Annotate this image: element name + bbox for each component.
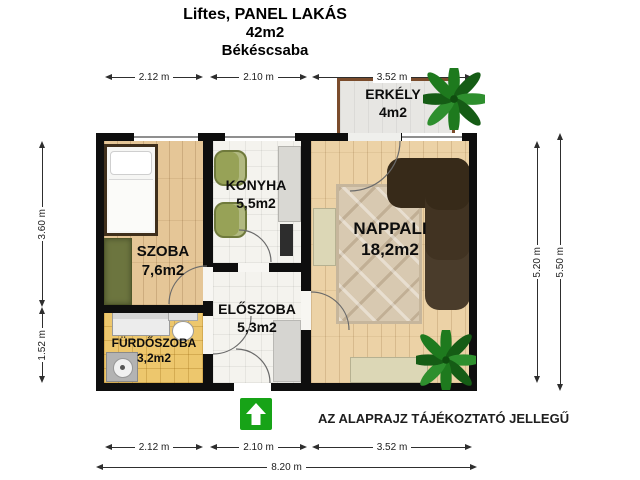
dimension-left-2: 1.52 m [36, 307, 48, 383]
arrow-down-icon [557, 384, 563, 391]
dimension-line [42, 314, 43, 328]
dimension-line [411, 447, 465, 448]
arrow-down-icon [39, 376, 45, 383]
disclaimer-note: AZ ALAPRAJZ TÁJÉKOZTATÓ JELLEGŰ [318, 411, 569, 426]
arrow-up-icon [534, 141, 540, 148]
arrow-left-icon [312, 444, 319, 450]
door-opening-entrance [234, 383, 271, 391]
arrow-right-icon [196, 74, 203, 80]
dimension-line [537, 148, 538, 245]
room-area-eloszoba: 5,3m2 [207, 319, 307, 337]
dimension-label: 1.52 m [37, 328, 48, 363]
arrow-left-icon [312, 74, 319, 80]
stove [280, 224, 293, 256]
dimension-bottom-2: 2.10 m [210, 442, 307, 452]
dimension-line [306, 467, 470, 468]
dimension-line [319, 77, 373, 78]
room-name-eloszoba: ELŐSZOBA [207, 301, 307, 319]
dimension-right-2: 5.50 m [554, 133, 566, 391]
title-line-2: 42m2 [55, 24, 475, 42]
wall [104, 305, 203, 313]
window [225, 133, 295, 141]
dimension-label: 2.12 m [135, 442, 174, 453]
room-area-szoba: 7,6m2 [118, 262, 208, 281]
arrow-up-icon [39, 141, 45, 148]
entrance-arrow-icon [240, 398, 272, 430]
room-name-furdoszoba: FÜRDŐSZOBA [98, 336, 210, 351]
dimension-line [217, 77, 239, 78]
dimension-line [42, 362, 43, 376]
dimension-top-2: 2.10 m [210, 72, 307, 82]
arrow-right-icon [465, 444, 472, 450]
dimension-line [278, 447, 300, 448]
dimension-line [537, 279, 538, 376]
dimension-line [278, 77, 300, 78]
dimension-label: 2.12 m [135, 72, 174, 83]
arrow-left-icon [96, 464, 103, 470]
dimension-total-width: 8.20 m [96, 462, 477, 472]
arrow-up-icon [39, 307, 45, 314]
arrow-right-icon [300, 444, 307, 450]
door-opening [238, 263, 269, 272]
arrow-right-icon [470, 464, 477, 470]
room-area-furdoszoba: 3,2m2 [98, 351, 210, 366]
dimension-bottom-1: 2.12 m [105, 442, 203, 452]
arrow-right-icon [300, 74, 307, 80]
dimension-label: 5.20 m [532, 245, 543, 280]
dimension-line [42, 148, 43, 207]
palm-plant [416, 330, 476, 390]
dimension-left-1: 3.60 m [36, 141, 48, 307]
room-area-konyha: 5,5m2 [211, 195, 301, 213]
arrow-left-icon [210, 74, 217, 80]
room-label-szoba: SZOBA 7,6m2 [118, 243, 208, 281]
dimension-label: 2.10 m [239, 442, 278, 453]
bed [104, 144, 158, 236]
dimension-line [112, 447, 135, 448]
bed-blanket [109, 179, 153, 231]
dimension-label: 5.50 m [555, 245, 566, 280]
dimension-bottom-3: 3.52 m [312, 442, 472, 452]
palm-plant [423, 68, 485, 130]
dimension-label: 2.10 m [239, 72, 278, 83]
washing-machine [112, 310, 170, 336]
room-name-nappali: NAPPALI [330, 218, 450, 239]
room-area-nappali: 18,2m2 [330, 239, 450, 260]
arrow-left-icon [105, 74, 112, 80]
dimension-line [319, 447, 373, 448]
dimension-label: 3.60 m [37, 207, 48, 242]
page-title: Liftes, PANEL LAKÁS 42m2 Békéscsaba [55, 5, 475, 60]
dimension-line [173, 447, 196, 448]
bed-pillow [110, 151, 152, 175]
room-label-eloszoba: ELŐSZOBA 5,3m2 [207, 301, 307, 336]
door-opening-balcony [348, 133, 401, 141]
dimension-line [42, 241, 43, 300]
arrow-down-icon [39, 300, 45, 307]
dimension-top-1: 2.12 m [105, 72, 203, 82]
arrow-down-icon [534, 376, 540, 383]
room-name-konyha: KONYHA [211, 177, 301, 195]
room-label-nappali: NAPPALI 18,2m2 [330, 218, 450, 261]
dimension-line [560, 279, 561, 384]
wall [301, 141, 311, 383]
dimension-label: 3.52 m [373, 442, 412, 453]
window [134, 133, 198, 141]
dimension-line [173, 77, 196, 78]
dimension-line [560, 140, 561, 245]
title-line-3: Békéscsaba [55, 42, 475, 60]
room-name-szoba: SZOBA [118, 243, 208, 262]
room-label-konyha: KONYHA 5,5m2 [211, 177, 301, 212]
window [402, 133, 462, 141]
dimension-line [103, 467, 267, 468]
dimension-line [217, 447, 239, 448]
arrow-right-icon [196, 444, 203, 450]
floor-plan-canvas: Liftes, PANEL LAKÁS 42m2 Békéscsaba ERKÉ… [0, 0, 640, 480]
arrow-left-icon [210, 444, 217, 450]
dimension-label: 3.52 m [373, 72, 412, 83]
arrow-up-icon [557, 133, 563, 140]
room-label-furdoszoba: FÜRDŐSZOBA 3,2m2 [98, 336, 210, 366]
dimension-line [112, 77, 135, 78]
arrow-left-icon [105, 444, 112, 450]
dimension-right-1: 5.20 m [531, 141, 543, 383]
dimension-label: 8.20 m [267, 462, 306, 473]
title-line-1: Liftes, PANEL LAKÁS [55, 5, 475, 24]
